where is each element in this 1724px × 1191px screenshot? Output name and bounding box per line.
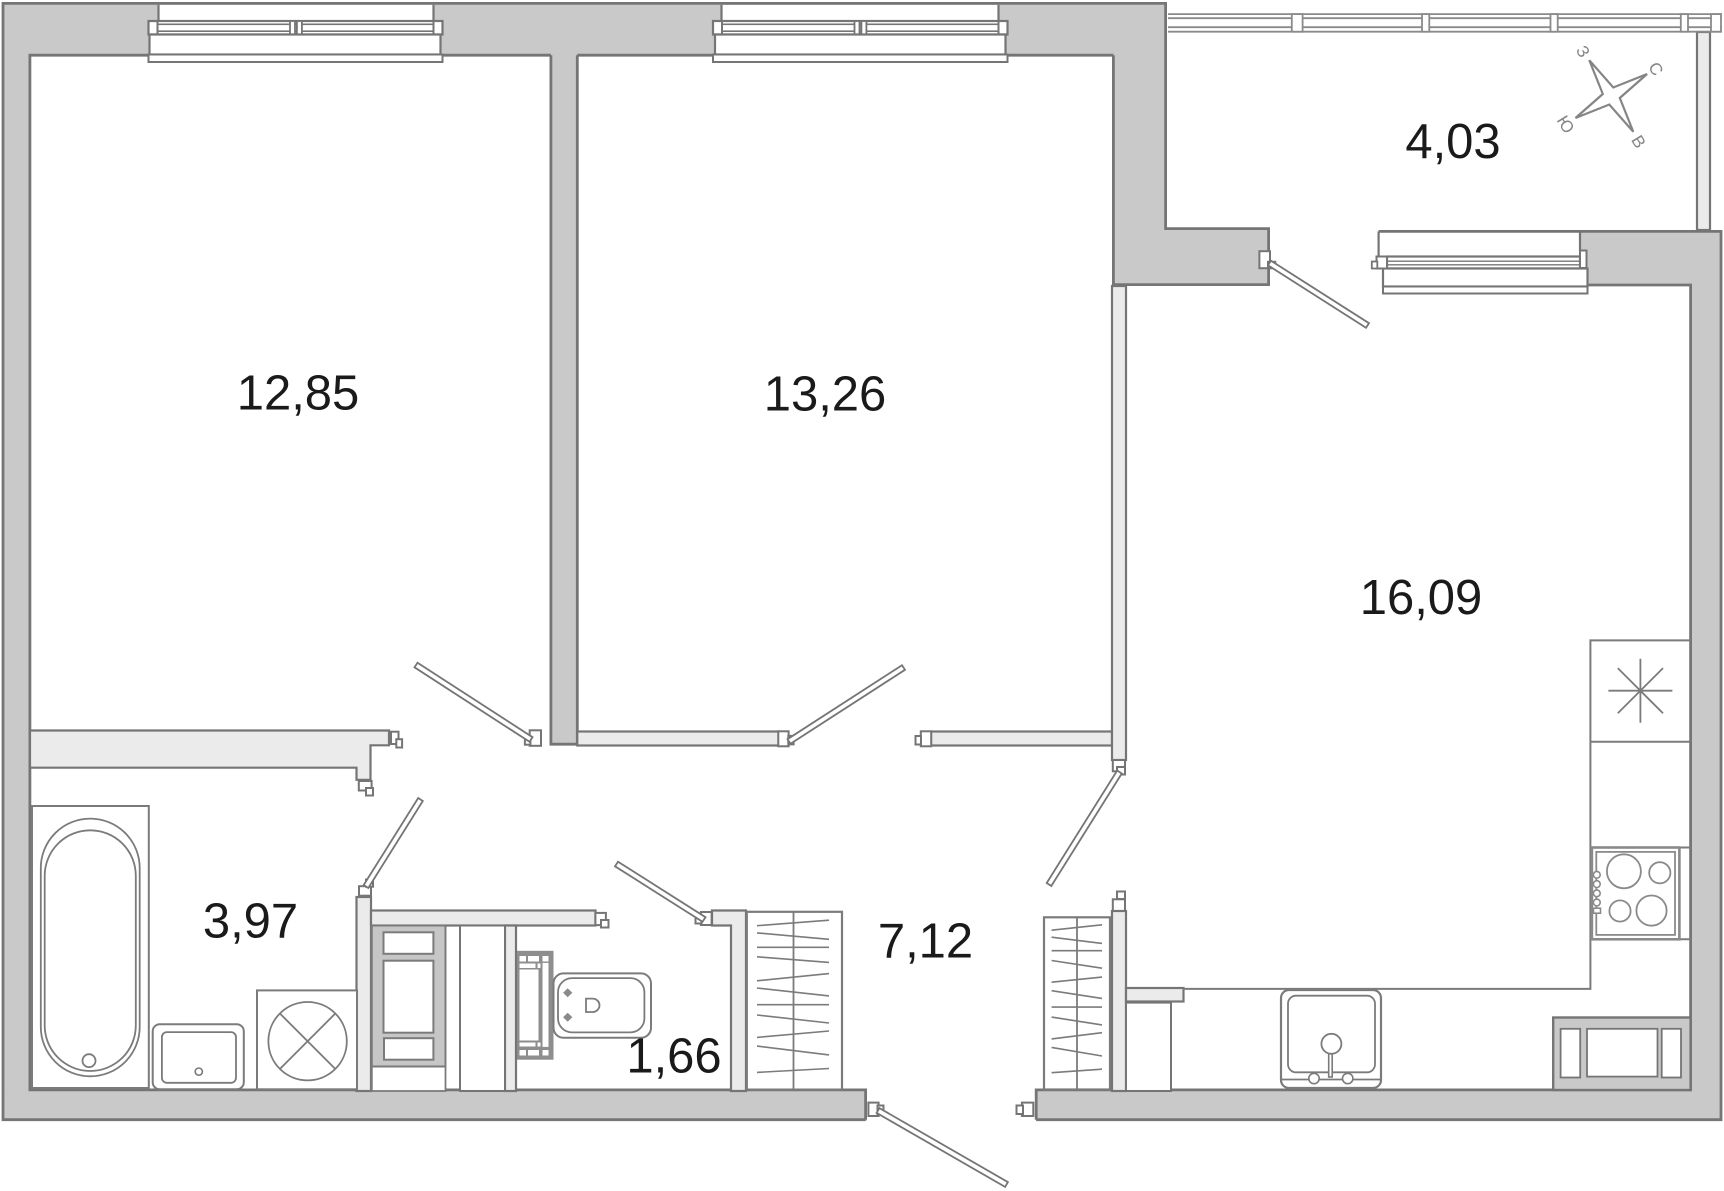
svg-text:7,12: 7,12 [878, 915, 973, 969]
svg-text:4,03: 4,03 [1405, 115, 1500, 169]
svg-text:12,85: 12,85 [237, 367, 360, 421]
svg-text:16,09: 16,09 [1360, 571, 1483, 625]
svg-text:3,97: 3,97 [203, 895, 298, 949]
svg-text:13,26: 13,26 [764, 368, 887, 422]
svg-text:1,66: 1,66 [626, 1030, 721, 1084]
